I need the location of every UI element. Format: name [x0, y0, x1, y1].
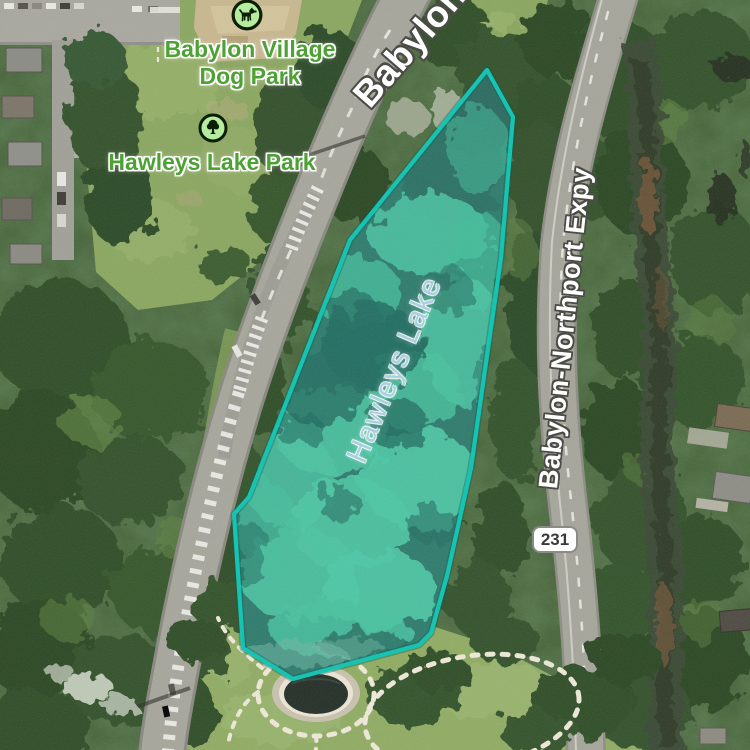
route-shield-231: 231 [532, 526, 578, 553]
poi-label-dog-park[interactable]: Babylon Village Dog Park [140, 36, 360, 90]
satellite-map[interactable]: Babylon Village Dog Park Hawleys Lake Pa… [0, 0, 750, 750]
poi-label-line: Dog Park [140, 63, 360, 90]
poi-label-line: Babylon Village [140, 36, 360, 63]
tree-icon[interactable] [198, 113, 228, 143]
dog-icon[interactable] [231, 0, 263, 31]
poi-label-line: Hawleys Lake Park [102, 149, 322, 176]
route-number: 231 [541, 530, 569, 550]
poi-label-hawleys-lake-park[interactable]: Hawleys Lake Park [102, 149, 322, 176]
